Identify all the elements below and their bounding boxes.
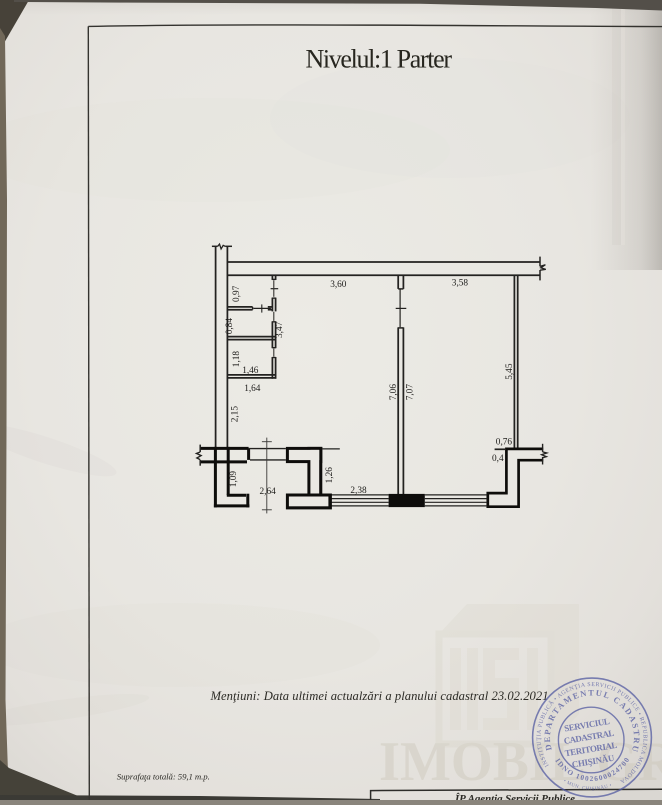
svg-text:2,64: 2,64 — [260, 487, 277, 497]
svg-text:7,07: 7,07 — [405, 384, 415, 401]
svg-text:2,15: 2,15 — [231, 406, 241, 423]
svg-text:3,47: 3,47 — [275, 321, 285, 338]
svg-text:5,45: 5,45 — [505, 363, 515, 380]
svg-text:Suprafaţa totală: 59,1 m.p.: Suprafaţa totală: 59,1 m.p. — [117, 771, 210, 781]
svg-text:ÎP Agenţia Servicii Publice: ÎP Agenţia Servicii Publice — [454, 793, 575, 800]
svg-text:0,4: 0,4 — [492, 454, 504, 464]
svg-text:1,26: 1,26 — [325, 467, 335, 484]
svg-text:2,38: 2,38 — [350, 486, 367, 496]
svg-text:0,76: 0,76 — [496, 437, 513, 447]
svg-text:7,06: 7,06 — [389, 384, 399, 401]
svg-text:1,46: 1,46 — [242, 366, 259, 376]
svg-text:1,18: 1,18 — [232, 351, 242, 368]
svg-text:3,58: 3,58 — [452, 278, 469, 288]
svg-text:1,64: 1,64 — [244, 384, 261, 394]
svg-text:0,84: 0,84 — [225, 318, 235, 335]
svg-text:3,60: 3,60 — [330, 280, 347, 290]
svg-text:1,09: 1,09 — [229, 471, 239, 488]
svg-text:Nivelul:1 Parter: Nivelul:1 Parter — [306, 44, 453, 73]
svg-text:Menţiuni: Data ultimei actualz: Menţiuni: Data ultimei actualzări a plan… — [210, 689, 549, 703]
svg-text:0,97: 0,97 — [232, 285, 242, 302]
